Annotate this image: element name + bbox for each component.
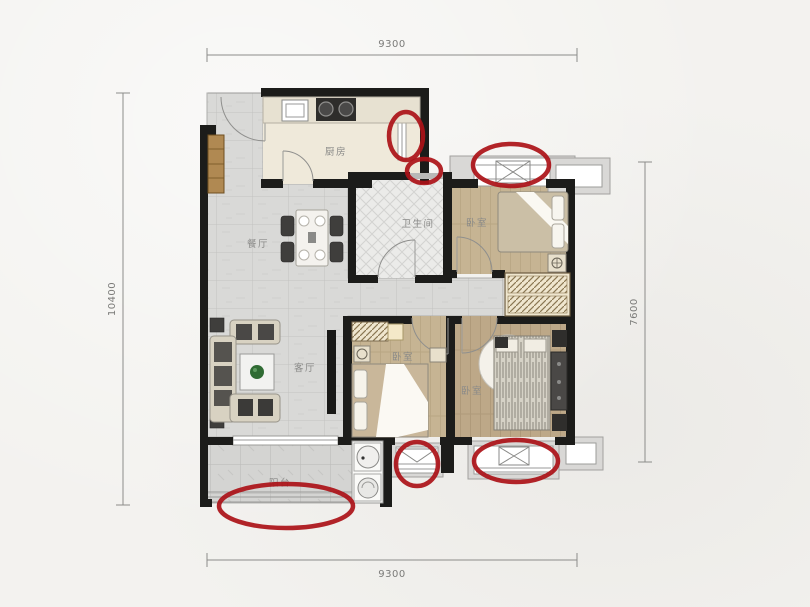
bedroom-master-label: 卧室 <box>461 385 483 397</box>
plant <box>250 365 264 379</box>
nightstand <box>430 348 446 362</box>
floor-plan-drawing: 厨房 餐厅 卫生间 卧室 客厅 卧室 卧室 阳台 9300 9300 10400… <box>0 0 810 607</box>
bedroom-top-label: 卧室 <box>466 217 488 229</box>
bookshelf <box>352 322 388 341</box>
dimension-left: 10400 <box>107 93 130 505</box>
ac-platform-bottom-right-inner <box>566 443 596 464</box>
nightstand <box>552 414 567 431</box>
dimension-bottom: 9300 <box>207 553 577 580</box>
balcony-laundry <box>352 441 383 503</box>
dining-label: 餐厅 <box>247 238 269 250</box>
wardrobe <box>505 273 570 316</box>
nightstand <box>552 330 567 347</box>
side-table <box>210 318 224 332</box>
lamp-table <box>388 324 403 340</box>
shoe-cabinet <box>208 135 224 193</box>
kitchen-label: 厨房 <box>325 146 347 158</box>
flower-table <box>354 346 370 362</box>
bedroom-middle-label: 卧室 <box>392 351 414 363</box>
dimension-top: 9300 <box>207 39 577 62</box>
living-label: 客厅 <box>294 362 316 374</box>
dimension-right-value: 7600 <box>629 298 640 325</box>
dimension-bottom-value: 9300 <box>378 569 405 580</box>
living-balcony-slider <box>233 436 338 445</box>
dimension-right: 7600 <box>629 162 652 462</box>
bathroom-label: 卫生间 <box>401 218 434 230</box>
dimension-left-value: 10400 <box>107 282 118 316</box>
dimension-top-value: 9300 <box>378 39 405 50</box>
floor-plan-canvas: 厨房 餐厅 卫生间 卧室 客厅 卧室 卧室 阳台 9300 9300 10400… <box>0 0 810 607</box>
tv <box>327 330 336 414</box>
